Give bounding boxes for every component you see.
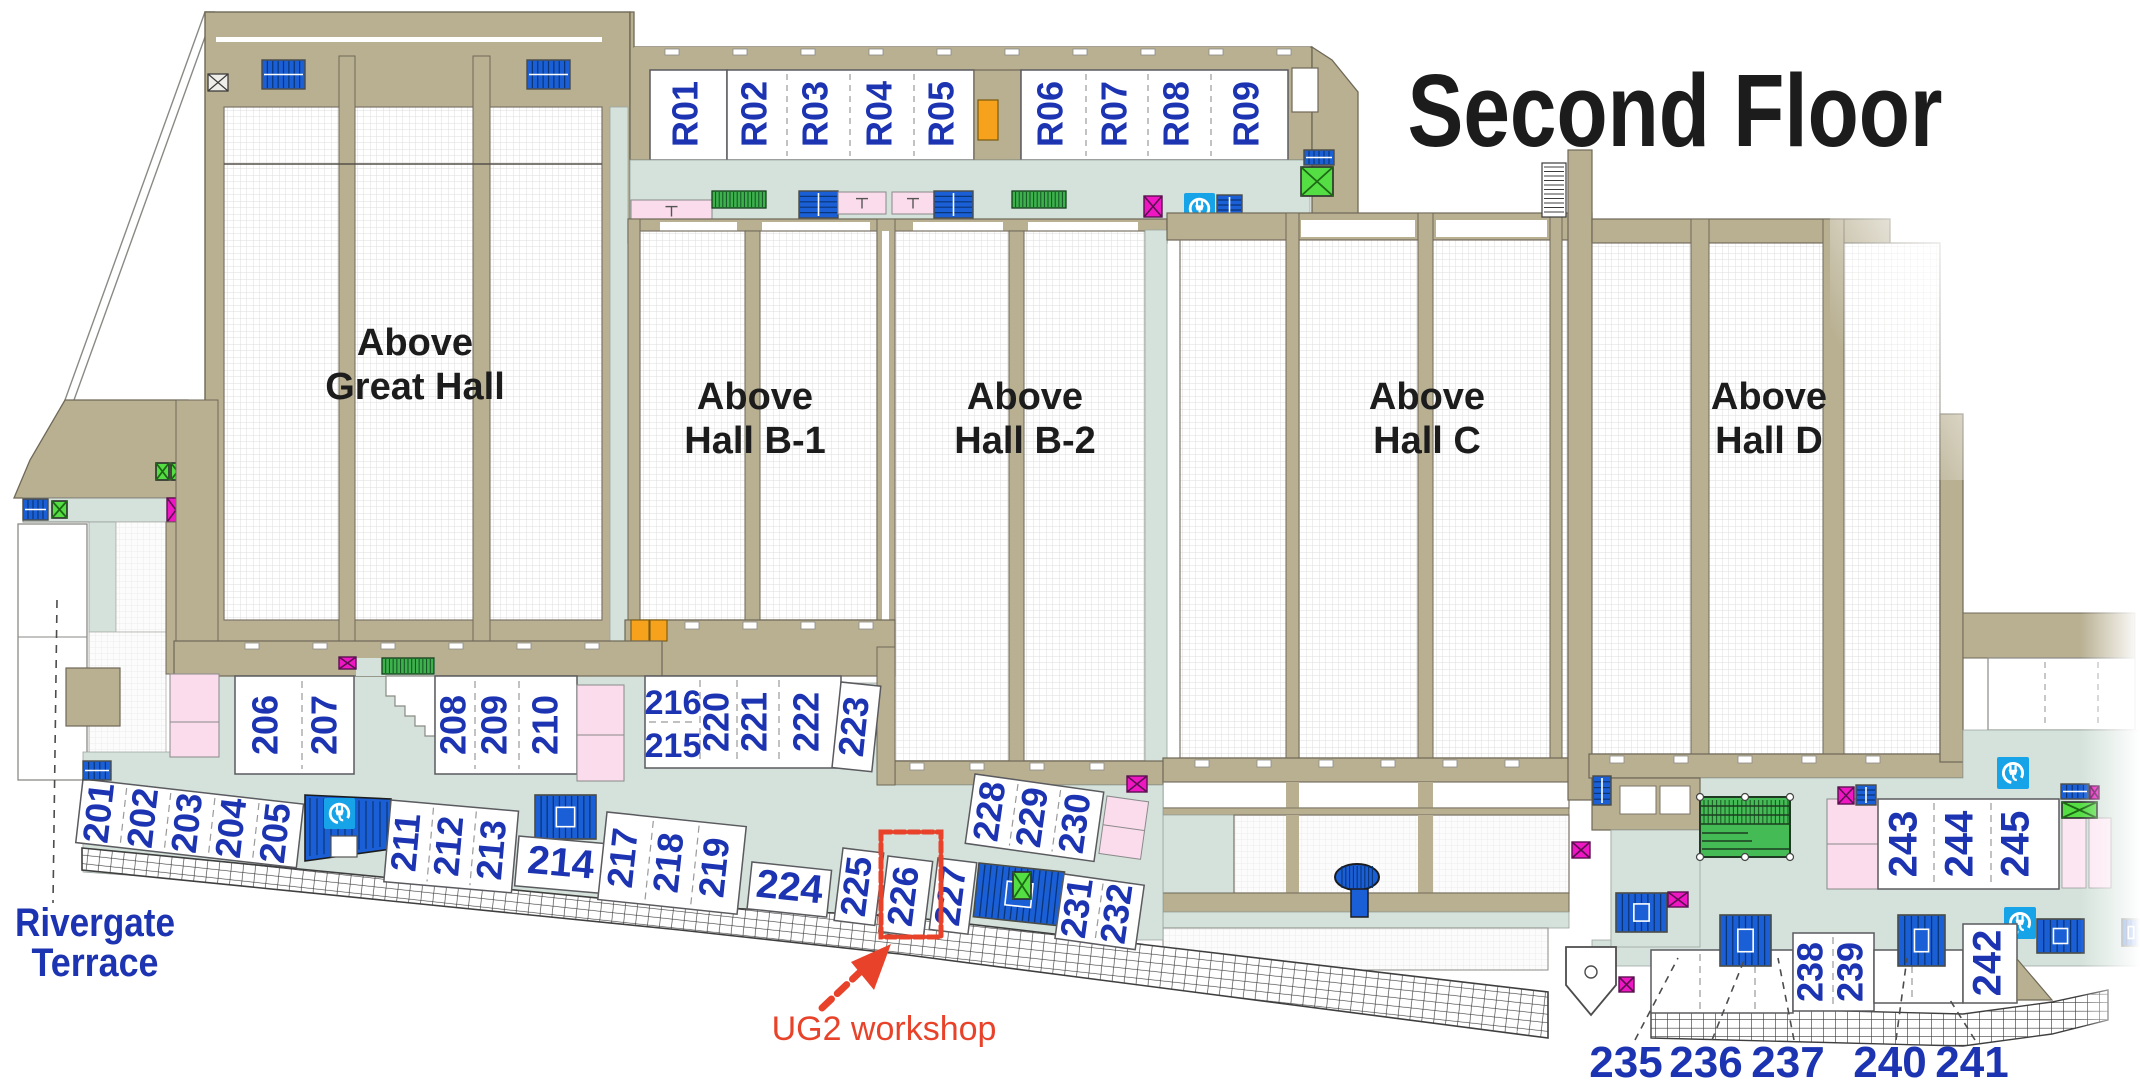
svg-text:227: 227	[926, 863, 974, 928]
svg-text:R08: R08	[1156, 81, 1197, 147]
svg-text:R05: R05	[921, 81, 962, 147]
svg-text:217: 217	[599, 826, 646, 890]
svg-text:224: 224	[754, 862, 826, 913]
svg-text:237: 237	[1751, 1038, 1824, 1084]
svg-text:239: 239	[1830, 942, 1871, 1002]
svg-text:Hall C: Hall C	[1373, 420, 1481, 462]
svg-text:235: 235	[1589, 1038, 1662, 1084]
svg-text:Hall D: Hall D	[1715, 420, 1823, 462]
svg-text:Above: Above	[967, 376, 1083, 418]
svg-text:211: 211	[382, 812, 428, 873]
svg-text:R09: R09	[1226, 81, 1267, 147]
svg-text:222: 222	[786, 692, 827, 752]
svg-text:216: 216	[645, 684, 702, 722]
svg-text:240: 240	[1853, 1038, 1926, 1084]
svg-text:202: 202	[119, 786, 167, 850]
svg-text:205: 205	[251, 801, 299, 865]
svg-text:214: 214	[526, 838, 597, 888]
svg-text:242: 242	[1966, 930, 2010, 997]
svg-text:203: 203	[163, 791, 211, 855]
svg-text:R07: R07	[1094, 81, 1135, 147]
svg-text:Hall B-1: Hall B-1	[684, 420, 825, 462]
svg-text:244: 244	[1938, 810, 1982, 877]
svg-text:228: 228	[964, 779, 1013, 844]
svg-text:R03: R03	[795, 81, 836, 147]
svg-text:Above: Above	[1711, 376, 1827, 418]
svg-text:Above: Above	[357, 322, 473, 364]
svg-text:230: 230	[1050, 791, 1099, 856]
svg-text:R02: R02	[734, 81, 775, 147]
svg-text:218: 218	[645, 831, 692, 895]
svg-text:236: 236	[1669, 1038, 1742, 1084]
svg-text:226: 226	[879, 864, 927, 929]
svg-text:241: 241	[1935, 1038, 2008, 1084]
svg-text:209: 209	[474, 695, 515, 755]
svg-text:215: 215	[645, 727, 702, 765]
svg-text:207: 207	[304, 695, 345, 755]
svg-text:232: 232	[1092, 881, 1141, 946]
svg-text:Hall B-2: Hall B-2	[954, 420, 1095, 462]
svg-text:Terrace: Terrace	[32, 941, 159, 985]
svg-text:Above: Above	[1369, 376, 1485, 418]
svg-text:245: 245	[1994, 811, 2038, 878]
svg-text:223: 223	[830, 695, 877, 759]
svg-text:221: 221	[734, 692, 775, 752]
svg-text:206: 206	[245, 695, 286, 755]
svg-text:UG2 workshop: UG2 workshop	[772, 1010, 997, 1048]
svg-text:229: 229	[1007, 785, 1056, 850]
svg-text:238: 238	[1790, 942, 1831, 1002]
svg-text:R01: R01	[665, 81, 706, 147]
svg-text:210: 210	[525, 695, 566, 755]
svg-text:208: 208	[433, 695, 474, 755]
svg-text:213: 213	[468, 818, 514, 881]
svg-text:204: 204	[207, 796, 255, 860]
svg-text:219: 219	[690, 835, 737, 899]
svg-text:Great Hall: Great Hall	[325, 366, 505, 408]
svg-text:243: 243	[1882, 811, 1926, 878]
svg-text:Rivergate: Rivergate	[15, 901, 175, 945]
svg-text:212: 212	[425, 814, 471, 877]
svg-text:201: 201	[75, 781, 123, 845]
svg-text:220: 220	[696, 692, 737, 752]
svg-text:Above: Above	[697, 376, 813, 418]
svg-text:Second Floor: Second Floor	[1408, 53, 1943, 168]
svg-text:R04: R04	[859, 81, 900, 147]
svg-text:R06: R06	[1030, 81, 1071, 147]
svg-text:225: 225	[832, 854, 880, 919]
